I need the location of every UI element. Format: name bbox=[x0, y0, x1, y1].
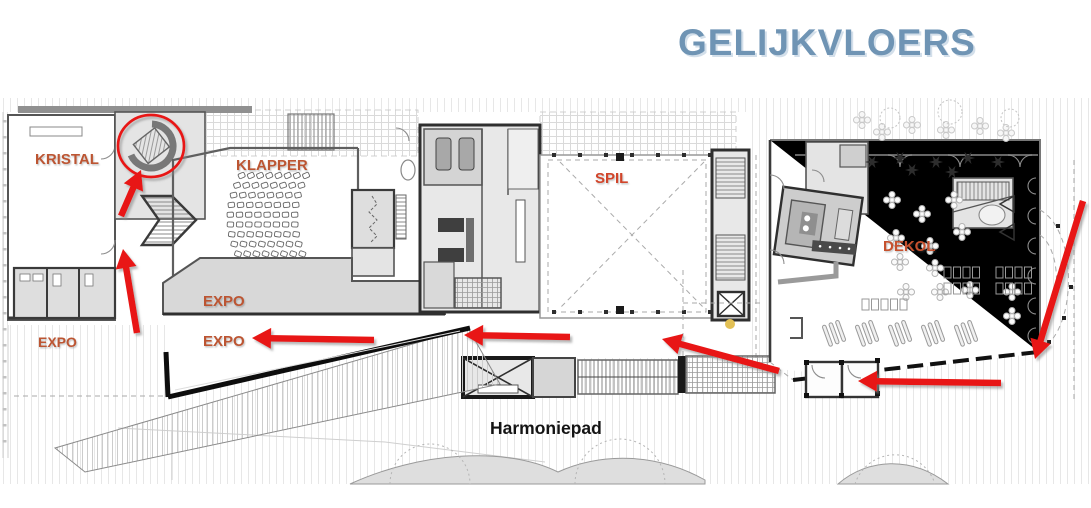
kitchen-counter bbox=[438, 248, 464, 262]
marker-dot bbox=[725, 319, 735, 329]
dekol-stair-block bbox=[953, 178, 1013, 228]
floorplan-svg: KRISTAL KLAPPER SPIL DEKOL EXPO EXPO EXP… bbox=[0, 0, 1091, 508]
toilet-block bbox=[14, 268, 115, 318]
grand-piano bbox=[436, 138, 451, 170]
left-ticks bbox=[3, 120, 7, 443]
label-kristal: KRISTAL bbox=[35, 151, 99, 168]
label-spil: SPIL bbox=[595, 170, 628, 187]
label-harmoniepad: Harmoniepad bbox=[490, 418, 602, 438]
kitchen-counter bbox=[438, 218, 464, 232]
service-block bbox=[420, 125, 540, 312]
roof-grid-spil bbox=[540, 112, 736, 156]
outdoor-stair bbox=[686, 356, 775, 393]
grand-piano bbox=[459, 138, 474, 170]
label-dekol: DEKOL bbox=[883, 238, 936, 255]
label-expo-band: EXPO bbox=[203, 293, 245, 310]
label-expo-route: EXPO bbox=[203, 333, 245, 350]
escape-stair bbox=[288, 114, 334, 150]
bottom-structures bbox=[463, 356, 775, 397]
stair-tower bbox=[712, 150, 749, 320]
slide: GELIJKVLOERS bbox=[0, 0, 1091, 508]
label-expo-left: EXPO bbox=[38, 334, 77, 350]
label-klapper: KLAPPER bbox=[236, 157, 308, 174]
